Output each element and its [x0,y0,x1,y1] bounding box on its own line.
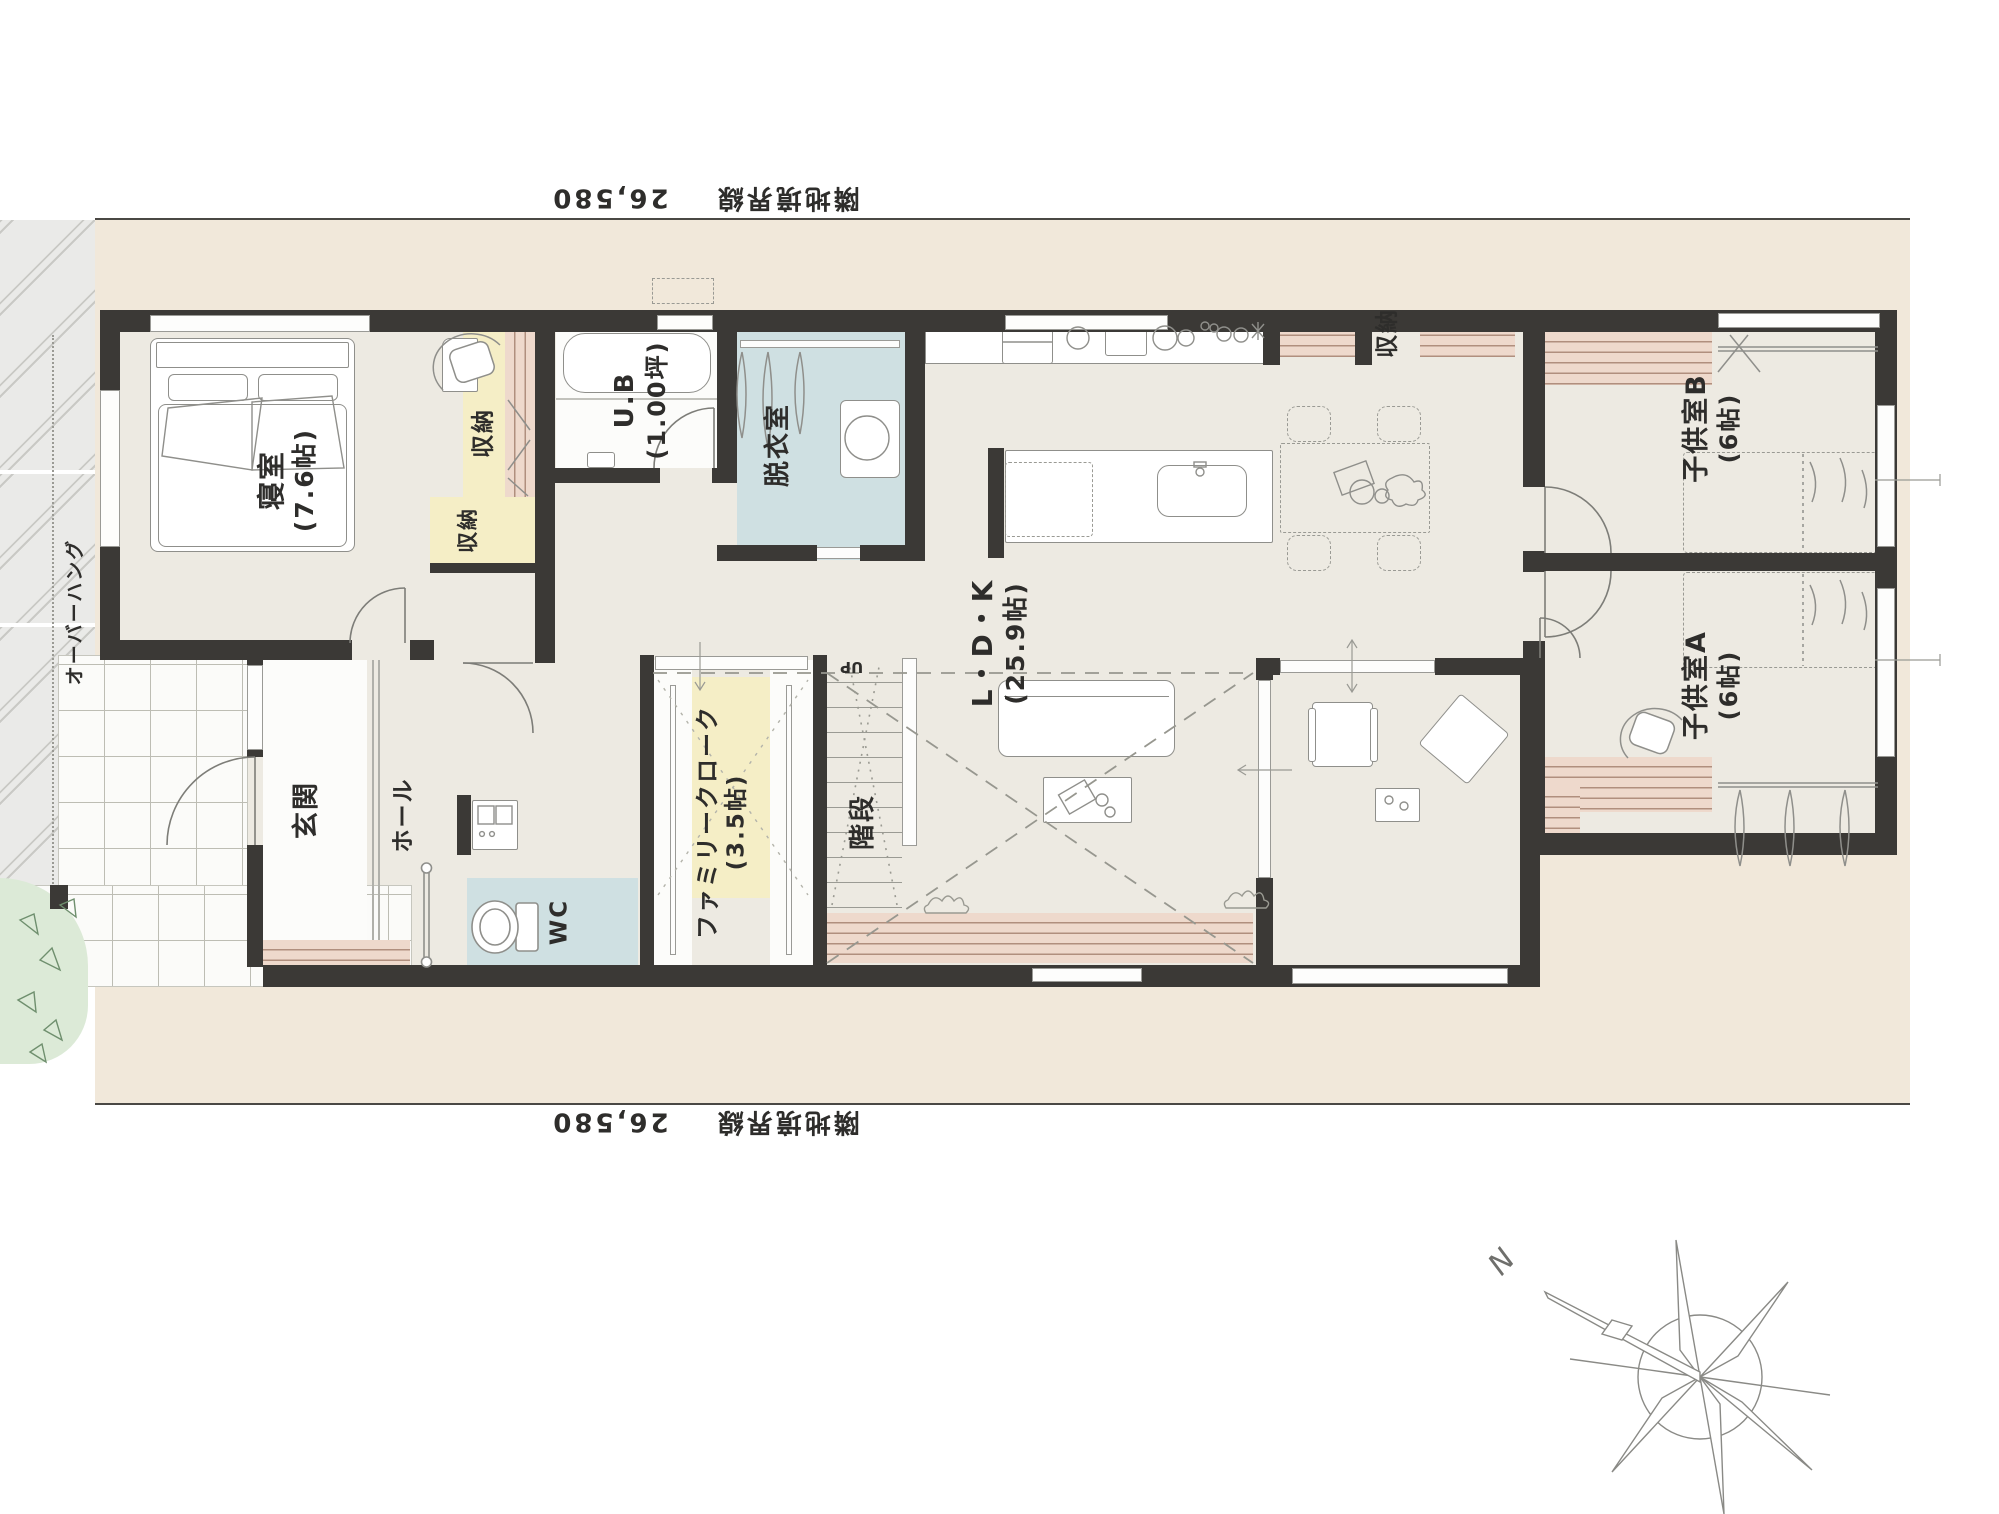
overhang-text: オーバーハング [64,539,88,685]
stairs-name: 階段 [847,794,880,850]
bedroom-name: 寝室 [254,450,289,510]
snowflake-icon [1252,322,1264,340]
compass-rose [1545,1240,1830,1514]
wc-name: WC [546,899,575,945]
closet-name: 収納 [455,507,481,553]
family-closet-area: (3.5帖) [723,774,752,871]
ldk-name: L・D・K [965,579,1000,708]
kids-a-area: (6帖) [1714,650,1744,721]
bath-area: (1.00坪) [641,340,671,459]
toilet [472,901,538,953]
kids-a-label: 子供室A (6帖) [1680,630,1744,740]
boundary-label-bottom: 隣地境界線 26,580 [550,1106,859,1143]
hall-label: ホール [390,778,419,853]
ldk-label: L・D・K (25.9帖) [965,579,1031,708]
bath-name: U.B [609,372,642,429]
dressing-name: 脱衣室 [762,403,795,487]
kids-b-area: (6帖) [1714,393,1744,464]
plan-linework [0,0,1999,1514]
ldk-area: (25.9帖) [1000,581,1031,705]
overhang-label: オーバーハング [64,539,88,685]
floor-plan: 隣地境界線 26,580 隣地境界線 26,580 オーバーハング 寝室 (7.… [0,0,1999,1514]
entrance-label: 玄関 [290,781,324,839]
stairs-dotted [832,662,897,905]
handrail [422,863,432,967]
hall-name: ホール [390,778,419,853]
hall-closet-label: 収納 [455,507,481,553]
entrance-name: 玄関 [290,781,324,839]
table-doodles [1059,461,1426,817]
bedroom-area: (7.6帖) [289,428,320,532]
boundary-dimension: 26,580 [550,183,668,213]
boundary-dimension: 26,580 [550,1107,668,1137]
boundary-name: 隣地境界線 [715,1107,860,1137]
shrub-doodles [924,891,1268,913]
kids-b-name: 子供室B [1680,373,1714,483]
wc-label: WC [546,899,575,945]
family-closet-name: ファミリークローク [693,705,723,939]
storage-name: 収納 [1374,308,1403,358]
boundary-name: 隣地境界線 [715,183,860,213]
up-text: UP [840,658,863,676]
door-arcs [167,408,1611,845]
dressing-label: 脱衣室 [762,403,795,487]
bedroom-label: 寝室 (7.6帖) [254,428,320,532]
bath-label: U.B (1.00坪) [609,340,672,459]
stairs-up-label: UP [840,658,863,676]
stairs-label: 階段 [847,794,880,850]
boundary-label-top: 隣地境界線 26,580 [550,182,859,219]
kitchen-storage-label: 収納 [1374,308,1403,358]
window-ticks [695,474,1940,775]
plant-leaves [18,899,76,1062]
kids-bed-clothes [1803,454,1867,666]
closet-name: 収納 [470,408,499,458]
bedroom-closet-label: 収納 [470,408,499,458]
kids-b-label: 子供室B (6帖) [1680,373,1744,483]
family-closet-label: ファミリークローク (3.5帖) [693,705,752,939]
appliance-details [478,322,1264,836]
kids-a-name: 子供室A [1680,630,1714,740]
